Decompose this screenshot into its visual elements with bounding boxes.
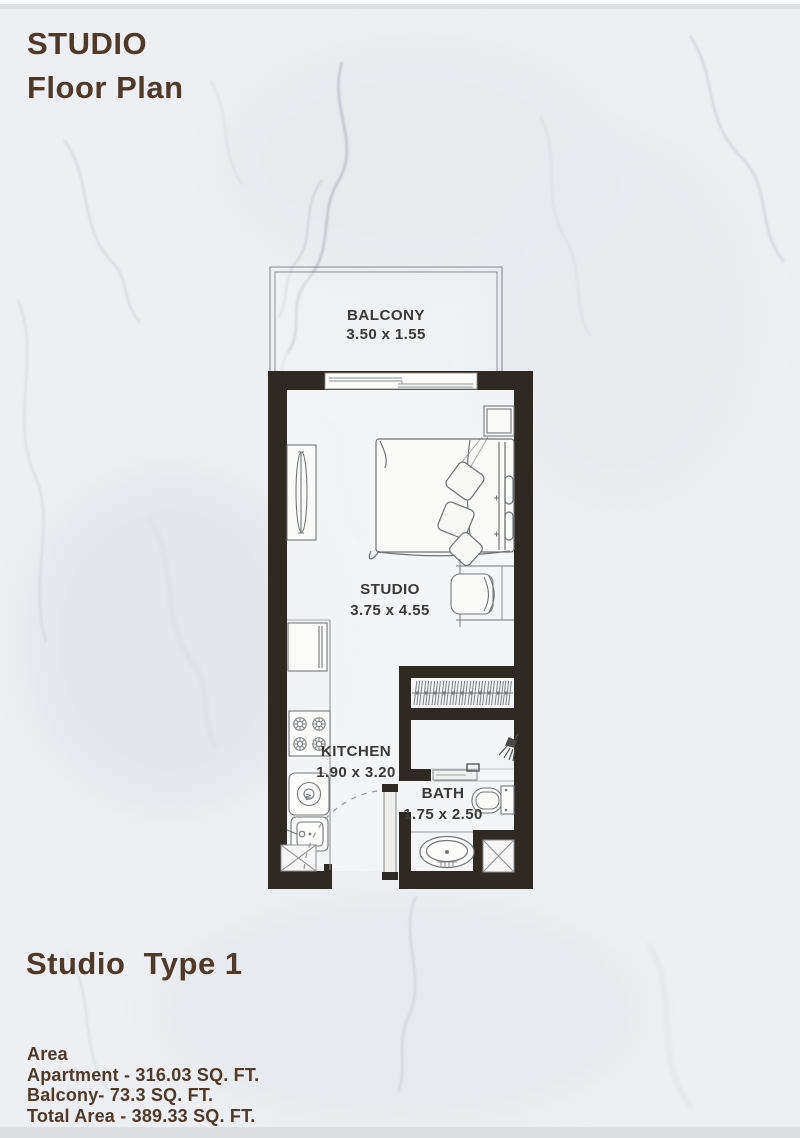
washer-letter: W	[306, 793, 313, 800]
bottom-edge	[0, 1127, 800, 1138]
area-line-total: Total Area - 389.33 SQ. FT.	[27, 1106, 259, 1127]
kitchen-label: KITCHEN	[321, 743, 391, 760]
studio-label: STUDIO	[360, 581, 420, 598]
studio-dims: 3.75 x 4.55	[350, 602, 429, 619]
wall-bath-left-lower	[399, 812, 411, 889]
balcony-dims: 3.50 x 1.55	[346, 326, 425, 343]
kitchen-dims: 1.90 x 3.20	[316, 764, 395, 781]
area-line-balcony: Balcony- 73.3 SQ. FT.	[27, 1085, 259, 1106]
service-shaft-left	[281, 845, 316, 871]
page-title-line1: STUDIO	[27, 22, 184, 66]
wall-bottom-right	[399, 871, 533, 889]
wall-closet-top	[399, 666, 514, 678]
balcony-label: BALCONY	[347, 307, 425, 324]
wall-left	[268, 371, 287, 889]
bath-label: BATH	[422, 785, 465, 802]
entry-door-stop	[324, 864, 332, 872]
wall-bath-door-stub	[399, 769, 431, 781]
top-edge	[0, 0, 800, 4]
area-line-apartment: Apartment - 316.03 SQ. FT.	[27, 1065, 259, 1086]
nightstand	[484, 406, 514, 436]
wall-right	[514, 371, 533, 889]
wall-shaft-left	[473, 830, 483, 889]
bed	[369, 437, 514, 567]
page-title: STUDIO Floor Plan	[27, 22, 184, 110]
unit-type-title: Studio Type 1	[26, 946, 243, 982]
wall-closet-bottom	[399, 708, 514, 720]
service-shaft-right	[483, 840, 514, 872]
wall-bottom-left	[268, 871, 332, 889]
bathroom-sink-icon	[420, 837, 474, 868]
bath-dims: 1.75 x 2.50	[403, 806, 482, 823]
desk-chair	[451, 574, 494, 614]
area-summary: Area Apartment - 316.03 SQ. FT. Balcony-…	[27, 1044, 259, 1126]
fridge-icon	[288, 623, 327, 671]
page-title-line2: Floor Plan	[27, 66, 184, 110]
area-heading: Area	[27, 1044, 259, 1065]
wall-bath-left-upper	[399, 666, 411, 778]
balcony-slider-door	[325, 373, 477, 389]
wardrobe	[287, 445, 316, 540]
